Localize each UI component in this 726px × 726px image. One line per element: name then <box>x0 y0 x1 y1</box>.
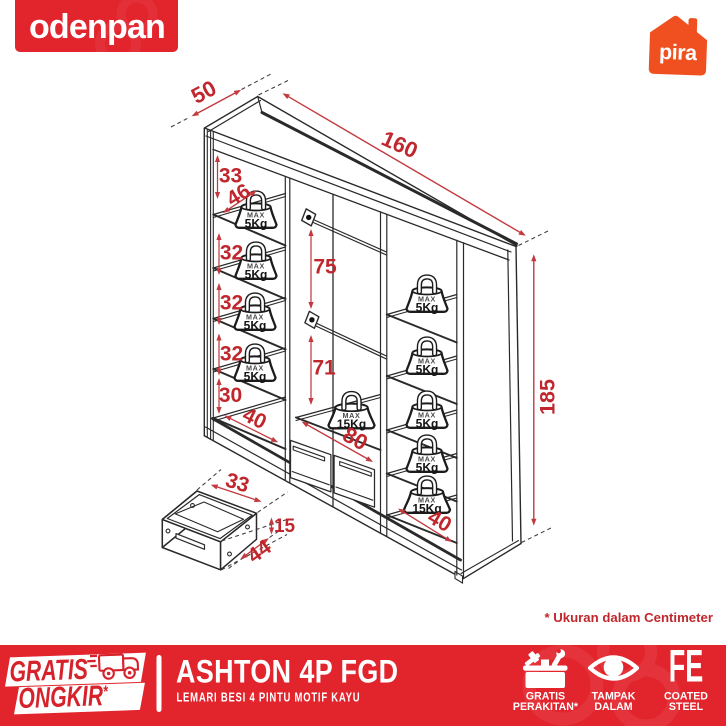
svg-text:ASHTON 4P FGD: ASHTON 4P FGD <box>176 654 399 690</box>
svg-text:5Kg: 5Kg <box>416 300 439 314</box>
svg-text:5Kg: 5Kg <box>416 416 439 430</box>
svg-text:DALAM: DALAM <box>594 701 632 713</box>
svg-text:STEEL: STEEL <box>669 701 704 713</box>
svg-text:PERAKITAN*: PERAKITAN* <box>513 701 579 713</box>
svg-text:185: 185 <box>536 379 560 415</box>
svg-text:5Kg: 5Kg <box>416 362 439 376</box>
svg-text:33: 33 <box>223 469 252 498</box>
svg-text:LEMARI BESI 4 PINTU MOTIF KAYU: LEMARI BESI 4 PINTU MOTIF KAYU <box>177 691 361 705</box>
svg-text:75: 75 <box>313 256 337 279</box>
svg-text:ONGKIR*: ONGKIR* <box>18 680 110 715</box>
svg-text:5Kg: 5Kg <box>244 369 267 383</box>
svg-text:160: 160 <box>378 126 422 164</box>
svg-text:40: 40 <box>239 403 270 434</box>
svg-text:30: 30 <box>219 384 242 407</box>
svg-text:32: 32 <box>220 343 243 366</box>
svg-text:5Kg: 5Kg <box>244 318 267 332</box>
svg-text:15: 15 <box>274 516 296 537</box>
svg-text:32: 32 <box>220 292 243 315</box>
svg-text:71: 71 <box>312 357 336 380</box>
svg-text:32: 32 <box>220 242 243 265</box>
svg-text:5Kg: 5Kg <box>245 267 268 281</box>
svg-text:5Kg: 5Kg <box>416 460 439 474</box>
svg-text:5Kg: 5Kg <box>245 216 268 230</box>
svg-text:FE: FE <box>669 645 703 691</box>
